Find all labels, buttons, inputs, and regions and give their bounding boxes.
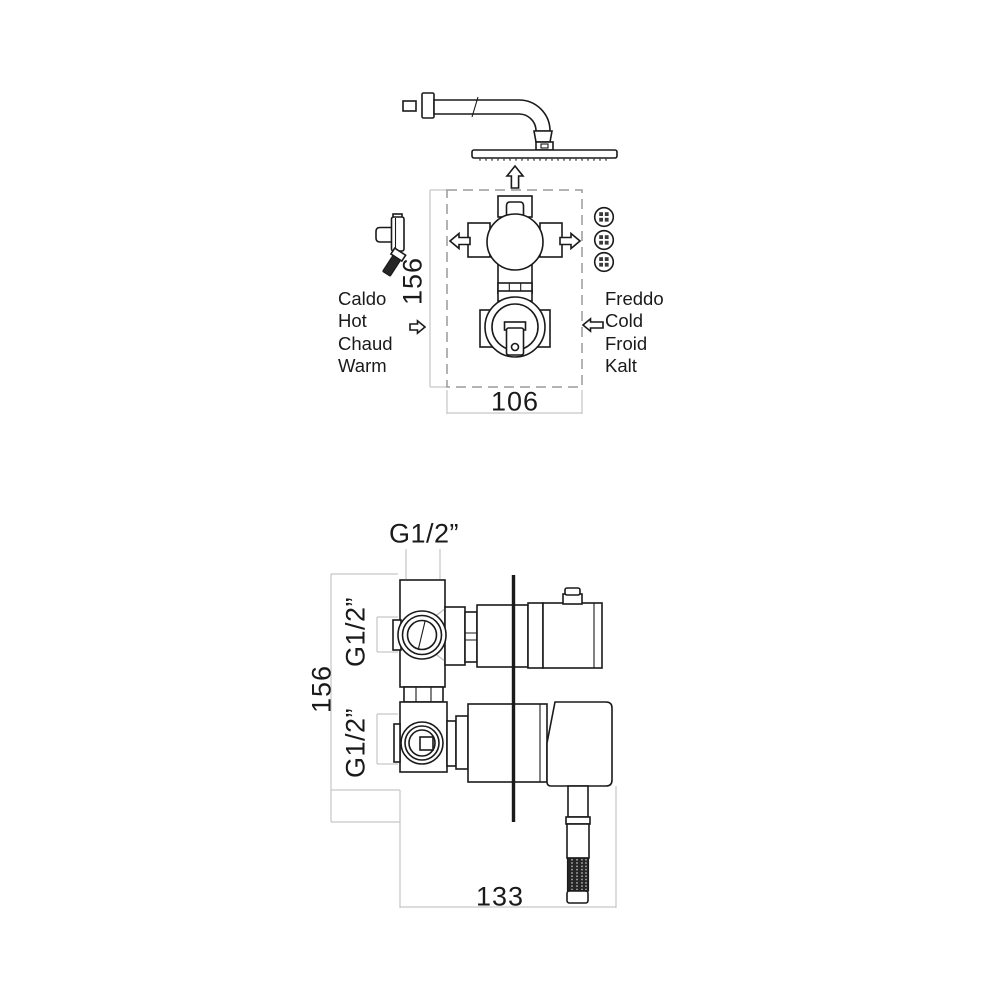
hand-lever <box>566 786 590 903</box>
flow-up-arrow <box>507 166 523 188</box>
diverter-knob <box>547 702 612 786</box>
valve-front-view <box>468 196 562 357</box>
dim-lower-port-thread: G1/2” <box>341 708 372 778</box>
dim-width-side-view: 133 <box>476 882 524 913</box>
hot-label-en: Hot <box>338 310 393 332</box>
cold-inlet-arrow <box>583 319 603 331</box>
valve-side-view-lower <box>394 702 612 786</box>
dim-height-top-view: 156 <box>398 257 429 305</box>
dim-height-side-view: 156 <box>307 665 338 713</box>
valve-side-view-upper <box>393 580 602 687</box>
cold-label-en: Cold <box>605 310 664 332</box>
hot-label-fr: Chaud <box>338 333 393 355</box>
spec-sheet-page: Caldo Hot Chaud Warm Freddo Cold Froid K… <box>0 0 1000 1000</box>
dim-top-port-thread: G1/2” <box>389 519 459 550</box>
cold-water-labels: Freddo Cold Froid Kalt <box>605 288 664 378</box>
thermostat-cartridge <box>487 214 543 270</box>
hot-water-labels: Caldo Hot Chaud Warm <box>338 288 393 378</box>
technical-drawing-canvas <box>0 0 1000 1000</box>
cold-label-it: Freddo <box>605 288 664 310</box>
service-port-icon <box>595 253 614 272</box>
hot-inlet-arrow <box>410 321 425 333</box>
outlet-arrow-right <box>560 234 580 249</box>
hot-label-de: Warm <box>338 355 393 377</box>
dim-width-top-view: 106 <box>491 387 539 418</box>
cold-label-fr: Froid <box>605 333 664 355</box>
rain-shower-arm <box>403 93 553 150</box>
shower-head <box>472 150 617 161</box>
dim-upper-port-thread: G1/2” <box>341 597 372 667</box>
cold-label-de: Kalt <box>605 355 664 377</box>
hot-label-it: Caldo <box>338 288 393 310</box>
body-connector-nut <box>404 687 443 702</box>
service-port-icon <box>595 208 614 227</box>
service-port-icon <box>595 231 614 250</box>
temperature-knob <box>543 603 602 668</box>
service-port-icons <box>595 208 614 272</box>
outlet-arrow-left <box>450 234 470 249</box>
